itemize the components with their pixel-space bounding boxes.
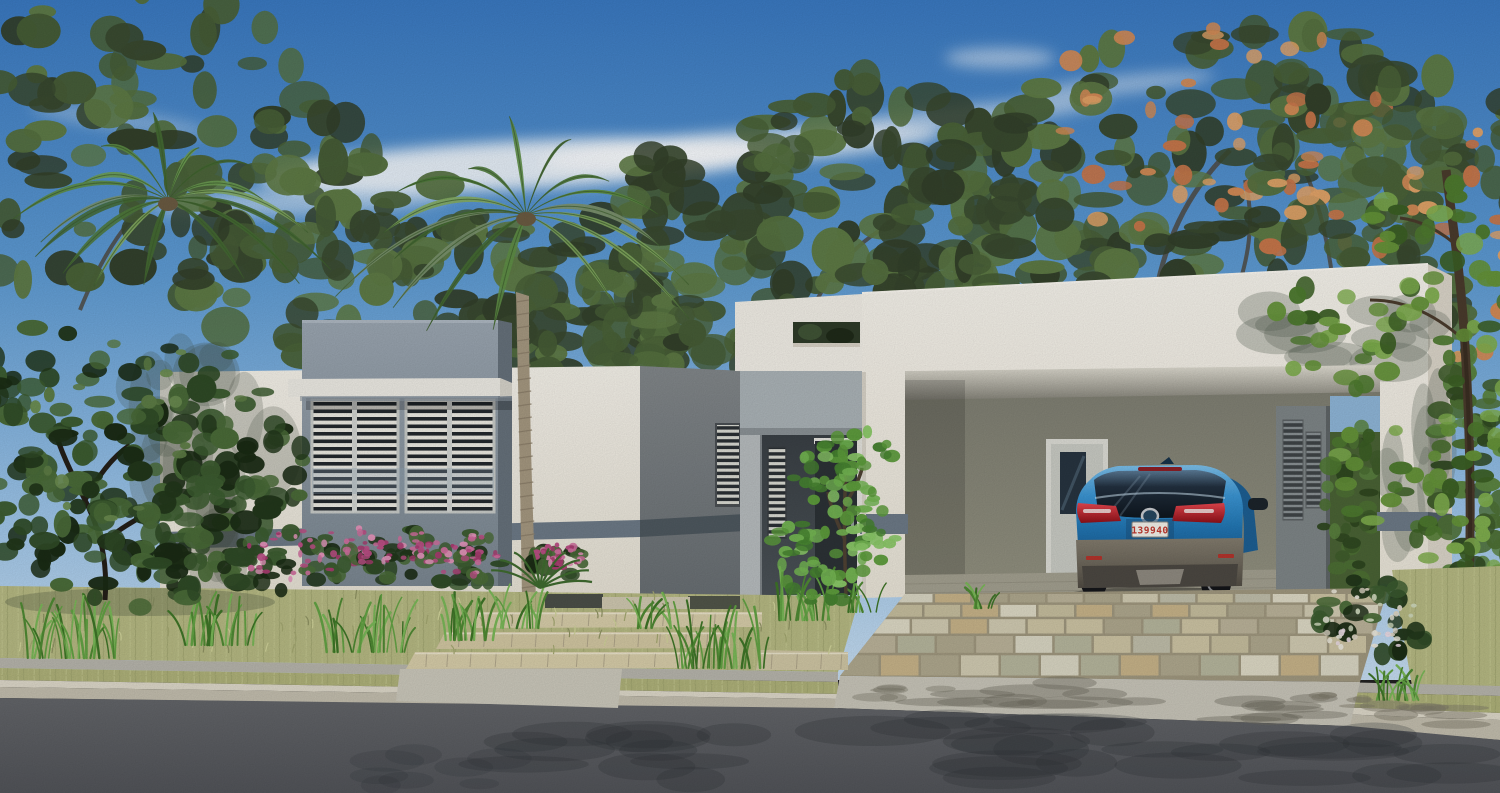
- entry-tree-foliage: [876, 505, 888, 517]
- background-tree-foliage: [16, 14, 60, 49]
- white-flower: [1348, 625, 1353, 631]
- entry-porch-pillar: [740, 435, 762, 604]
- pink-flower: [418, 547, 425, 553]
- paver-tile: [976, 636, 1013, 653]
- step-slab-dark: [545, 594, 603, 608]
- vent-grille: [1306, 432, 1321, 508]
- left-tree-highlight: [152, 399, 165, 405]
- entry-tree-foliage: [782, 550, 800, 556]
- shadow-blob: [1309, 692, 1338, 699]
- background-tree-foliage: [1443, 152, 1462, 166]
- paver-tile: [1281, 655, 1319, 675]
- paver-tile: [1267, 605, 1303, 617]
- left-tree-foliage: [166, 564, 189, 579]
- white-flower: [1352, 634, 1358, 639]
- entry-tree-foliage: [874, 555, 888, 566]
- flower-bush-foliage: [379, 571, 396, 584]
- paver-tile: [1144, 619, 1180, 633]
- license-plate-text: 139940: [1131, 526, 1168, 537]
- background-tree-foliage: [359, 273, 394, 306]
- paver-tile: [1198, 594, 1233, 602]
- right-tree-foliage: [1452, 515, 1469, 526]
- background-tree-foliage: [1325, 28, 1374, 40]
- entry-tree-foliage: [863, 425, 872, 438]
- orange-blossom: [1317, 32, 1327, 48]
- background-tree-foliage: [71, 144, 106, 167]
- orange-blossom: [1215, 198, 1229, 213]
- pink-flower: [305, 571, 310, 576]
- left-tree-foliage: [164, 481, 182, 498]
- right-tree-foliage: [1335, 477, 1357, 491]
- background-tree-foliage: [1035, 198, 1074, 232]
- left-tree-highlight: [169, 396, 182, 408]
- orange-blossom: [1173, 185, 1188, 203]
- entry-tree-foliage: [860, 551, 872, 561]
- orange-blossom: [1473, 127, 1483, 137]
- background-tree-foliage: [882, 126, 902, 169]
- right-tree-foliage: [1388, 205, 1409, 215]
- pink-flower: [305, 559, 311, 564]
- right-tree-foliage: [1409, 529, 1423, 548]
- entry-tree-foliage: [862, 533, 876, 541]
- background-tree-foliage: [691, 337, 726, 371]
- paver-tile: [1028, 619, 1064, 633]
- left-tree-foliage: [84, 551, 106, 563]
- pink-flower: [345, 549, 350, 556]
- window-mullion-right: [447, 400, 452, 512]
- paver-tile: [1273, 594, 1308, 602]
- shadow-blob: [1238, 770, 1371, 786]
- white-flower: [1336, 641, 1340, 645]
- right-tree-foliage: [1380, 231, 1396, 242]
- right-tree-foliage: [1305, 360, 1321, 371]
- orange-blossom: [1301, 151, 1324, 162]
- background-tree-foliage: [743, 181, 783, 204]
- entry-tree-foliage: [821, 569, 836, 586]
- left-tree-foliage: [50, 403, 73, 417]
- pink-flower: [291, 571, 297, 576]
- left-tree-foliage: [137, 502, 161, 525]
- background-tree-foliage: [662, 159, 705, 187]
- hedge-leaf: [1341, 523, 1351, 535]
- shadow-blob: [1339, 704, 1376, 708]
- orange-blossom: [1297, 186, 1320, 205]
- orange-blossom: [1407, 166, 1424, 180]
- orange-blossom: [1246, 49, 1262, 63]
- paver-tile: [1161, 655, 1199, 675]
- left-tree-foliage: [25, 350, 55, 372]
- palm-crown-base: [158, 197, 178, 211]
- right-tree-foliage: [1310, 332, 1329, 348]
- left-tree-highlight: [133, 506, 145, 511]
- pink-flower: [294, 534, 298, 539]
- background-tree-foliage: [834, 69, 854, 90]
- background-tree-foliage: [1019, 260, 1065, 274]
- left-tree-foliage: [18, 446, 44, 458]
- entry-tree-foliage: [794, 521, 810, 528]
- left-tree-foliage: [283, 465, 308, 485]
- left-tree-foliage: [48, 429, 77, 446]
- pink-flower: [270, 538, 278, 541]
- flower-bush-foliage: [1346, 574, 1362, 586]
- background-tree-foliage: [1352, 156, 1402, 187]
- left-tree-highlight: [73, 384, 85, 390]
- background-tree-foliage: [837, 120, 866, 136]
- left-tree-foliage: [234, 451, 256, 463]
- left-tree-foliage: [209, 490, 225, 506]
- pink-flower: [344, 538, 349, 544]
- background-tree-foliage: [671, 262, 717, 294]
- right-tree-foliage: [1374, 242, 1399, 254]
- pink-flower: [441, 570, 446, 574]
- left-tree-foliage: [104, 423, 127, 441]
- white-flower: [1393, 628, 1398, 634]
- pink-flower: [288, 576, 292, 582]
- right-tree-foliage: [1468, 422, 1485, 437]
- white-flower: [1331, 589, 1337, 593]
- left-tree-foliage: [200, 514, 229, 532]
- background-tree-foliage: [105, 23, 143, 53]
- white-flower: [1371, 644, 1378, 648]
- right-tree-foliage: [1425, 526, 1442, 541]
- flower-bush-foliage: [1316, 597, 1340, 607]
- left-tree-foliage: [81, 481, 99, 498]
- shadow-blob: [1241, 700, 1285, 711]
- background-tree-foliage: [1273, 59, 1310, 85]
- paver-tile: [1221, 619, 1257, 633]
- pink-flower: [578, 552, 583, 555]
- orange-blossom: [1286, 92, 1307, 106]
- right-tree-foliage: [1341, 505, 1363, 517]
- paver-tile: [1055, 636, 1092, 653]
- right-tree-foliage: [1348, 380, 1363, 398]
- background-tree-foliage: [416, 171, 465, 200]
- left-tree-foliage: [61, 417, 83, 427]
- left-tree-foliage: [109, 550, 131, 572]
- background-tree-foliage: [2, 219, 25, 238]
- orange-blossom: [1059, 50, 1082, 71]
- paver-tile: [1212, 636, 1249, 653]
- white-flower: [1324, 630, 1330, 636]
- walkway-slab: [602, 597, 690, 609]
- left-tree-foliage: [129, 598, 152, 615]
- orange-blossom: [1056, 127, 1075, 135]
- flower-bush-foliage: [1386, 580, 1408, 598]
- pink-flower: [433, 540, 440, 545]
- shadow-blob: [964, 714, 1126, 734]
- background-tree-foliage: [926, 139, 977, 171]
- foliage-through-opening: [826, 328, 854, 344]
- white-flower: [1366, 618, 1374, 621]
- background-tree-foliage: [1420, 106, 1467, 140]
- left-tree-foliage: [198, 366, 220, 383]
- right-tree-foliage: [1399, 277, 1419, 294]
- right-tree-foliage: [1337, 289, 1355, 304]
- left-tree-foliage: [251, 388, 274, 397]
- entry-tree-foliage: [818, 451, 834, 462]
- right-tree-foliage: [1267, 302, 1286, 322]
- right-tree-foliage: [1359, 440, 1372, 462]
- pink-flower: [365, 560, 373, 565]
- right-tree-foliage: [1434, 493, 1450, 516]
- orange-blossom: [1145, 101, 1156, 118]
- left-tree-foliage: [178, 353, 199, 373]
- left-tree-highlight: [63, 502, 71, 510]
- orange-blossom: [1163, 140, 1187, 151]
- entry-tree-foliage: [831, 431, 845, 444]
- lawn-tuft: [368, 616, 369, 625]
- right-tree-foliage: [1418, 552, 1439, 563]
- left-tree-foliage: [155, 522, 171, 543]
- lawn-tuft: [168, 627, 169, 636]
- window-canopy: [288, 378, 512, 397]
- hedge-leaf: [1317, 523, 1331, 531]
- left-tree-foliage: [262, 475, 279, 488]
- right-tree-foliage: [1475, 528, 1490, 543]
- white-flower: [1390, 615, 1395, 621]
- background-tree-foliage: [251, 11, 278, 44]
- background-tree-foliage: [254, 109, 284, 134]
- paver-tile: [1066, 619, 1102, 633]
- entry-tree-foliage: [795, 540, 813, 551]
- background-tree-foliage: [197, 115, 237, 147]
- hedge-leaf: [1329, 523, 1341, 539]
- palm-crown-base: [516, 212, 536, 226]
- paver-tile: [1133, 636, 1170, 653]
- white-flower: [1385, 632, 1391, 638]
- entry-tree-foliage: [882, 440, 892, 449]
- white-flower: [1314, 623, 1321, 626]
- pink-flower: [425, 543, 432, 549]
- entry-tree-foliage: [857, 456, 866, 465]
- pink-flower: [441, 547, 448, 554]
- entry-tree-foliage: [764, 535, 781, 546]
- orange-blossom: [1280, 41, 1299, 56]
- pink-flower: [248, 565, 255, 572]
- lawn-tuft: [789, 621, 790, 630]
- left-tree-highlight: [144, 357, 152, 371]
- pink-flower: [328, 531, 334, 534]
- hedge-leaf: [1321, 481, 1333, 494]
- entry-tree-foliage: [862, 525, 877, 533]
- paver-tile: [1160, 594, 1195, 602]
- shadow-blob: [876, 684, 906, 690]
- left-tree-highlight: [176, 349, 187, 355]
- left-tree-highlight: [44, 387, 55, 402]
- left-tree-foliage: [291, 489, 308, 501]
- paver-tile: [989, 619, 1025, 633]
- pink-flower: [321, 540, 327, 548]
- pink-flower: [568, 548, 574, 552]
- orange-blossom: [1174, 165, 1192, 185]
- entry-tree-foliage: [817, 440, 835, 448]
- pink-flower: [363, 541, 368, 545]
- left-tree-foliage: [183, 528, 214, 549]
- step-slab-dark: [688, 596, 740, 609]
- ornamental-grass: [245, 612, 246, 646]
- background-tree-foliage: [201, 307, 249, 347]
- right-tree-foliage: [1285, 361, 1301, 377]
- orange-blossom: [1203, 179, 1216, 186]
- left-tree-highlight: [172, 450, 186, 458]
- pink-flower: [494, 555, 500, 558]
- paver-tile: [1081, 655, 1119, 675]
- left-tree-foliage: [210, 428, 239, 450]
- carport-interior: 139940: [905, 365, 1398, 607]
- right-tree-foliage: [1380, 332, 1396, 354]
- entry-tree-foliage: [855, 565, 870, 577]
- left-tree-foliage: [13, 519, 32, 536]
- paver-tile: [1153, 605, 1189, 617]
- shadow-blob: [1346, 697, 1373, 703]
- right-tree-foliage: [1469, 260, 1491, 280]
- pink-flower: [470, 571, 477, 579]
- left-tree-foliage: [224, 574, 251, 591]
- pink-flower: [383, 556, 391, 561]
- paver-tile: [1115, 605, 1151, 617]
- background-tree-foliage: [52, 71, 97, 104]
- background-tree-foliage: [1231, 25, 1279, 44]
- interior-corner-shadow: [905, 380, 965, 584]
- background-tree-foliage: [651, 294, 675, 308]
- parapet-opening-sill: [793, 343, 860, 347]
- left-tree-foliage: [17, 378, 46, 397]
- left-tree-foliage: [72, 442, 93, 466]
- paver-tile: [912, 619, 948, 633]
- entry-tree-foliage: [846, 505, 861, 516]
- left-tree-foliage: [6, 538, 24, 550]
- background-tree-foliage: [322, 240, 354, 281]
- side-mirror: [1248, 498, 1268, 510]
- paver-tile: [898, 636, 935, 653]
- background-tree-foliage: [370, 191, 411, 208]
- background-tree-foliage: [948, 216, 973, 235]
- orange-blossom: [1466, 140, 1479, 149]
- pink-flower: [397, 542, 404, 549]
- background-tree-foliage: [1021, 78, 1062, 98]
- right-tree-foliage: [1341, 427, 1358, 443]
- entry-tree-foliage: [846, 481, 861, 491]
- background-tree-foliage: [1421, 54, 1454, 97]
- entry-tree-foliage: [820, 526, 830, 539]
- left-tree-highlight: [55, 474, 69, 488]
- flower-bush-foliage: [253, 573, 270, 592]
- paver-tile: [937, 636, 974, 653]
- white-flower: [1347, 637, 1351, 642]
- pink-flower: [444, 559, 450, 563]
- background-tree-foliage: [316, 196, 336, 238]
- flower-bush-foliage: [281, 524, 300, 541]
- pink-flower: [419, 531, 425, 535]
- shadow-blob: [1115, 752, 1242, 778]
- left-tree-highlight: [160, 369, 173, 377]
- window-mullion-left: [352, 400, 357, 512]
- background-tree-foliage: [1218, 220, 1259, 235]
- left-tree-highlight: [234, 395, 247, 402]
- background-tree-foliage: [675, 306, 695, 325]
- flower-bush-foliage: [395, 547, 408, 562]
- right-tree-foliage: [1369, 303, 1389, 317]
- pink-flower: [377, 540, 385, 547]
- shadow-blob: [1062, 688, 1127, 700]
- background-tree-foliage: [172, 268, 215, 290]
- white-flower: [1356, 608, 1361, 614]
- background-tree-foliage: [1253, 154, 1288, 171]
- right-tree-foliage: [1452, 211, 1477, 223]
- pink-flower: [325, 568, 332, 571]
- left-tree-foliage: [127, 461, 152, 481]
- pink-flower: [298, 542, 303, 547]
- white-flower: [1387, 623, 1393, 629]
- lawn-tuft: [43, 614, 44, 623]
- background-tree-foliage: [1211, 78, 1261, 100]
- orange-blossom: [1140, 168, 1156, 176]
- left-tree-foliage: [50, 578, 73, 592]
- left-tree-highlight: [30, 400, 41, 413]
- flower-bush-foliage: [1407, 622, 1425, 640]
- entry-tree-foliage: [883, 539, 896, 549]
- shadow-blob: [385, 744, 442, 765]
- shadow-blob: [926, 686, 956, 693]
- white-flower: [1393, 611, 1399, 617]
- background-tree-foliage: [994, 113, 1038, 134]
- left-tree-foliage: [263, 430, 284, 453]
- pink-flower: [479, 535, 485, 540]
- background-tree-foliage: [1319, 219, 1357, 239]
- background-tree-foliage: [579, 268, 624, 291]
- white-flower: [1394, 636, 1401, 641]
- flower-bush-foliage: [1363, 613, 1382, 623]
- left-tree-foliage: [84, 396, 115, 408]
- right-tree-foliage: [1389, 462, 1413, 475]
- right-tree-foliage: [1476, 335, 1497, 353]
- background-tree-foliage: [1074, 192, 1124, 208]
- orange-blossom: [1087, 212, 1108, 227]
- background-tree-foliage: [793, 93, 836, 118]
- shadow-blob: [434, 758, 493, 777]
- pink-flower: [299, 529, 307, 533]
- entry-tree-foliage: [785, 582, 801, 595]
- vent-louver-window: [716, 424, 740, 506]
- background-tree-foliage: [1195, 116, 1224, 146]
- shadow-blob: [1394, 744, 1500, 764]
- right-tree-foliage: [1443, 350, 1456, 366]
- paver-tile: [1290, 636, 1327, 653]
- pink-flower: [310, 544, 316, 549]
- left-tree-foliage: [73, 532, 92, 552]
- flower-bush-foliage: [337, 556, 351, 573]
- orange-blossom: [1134, 221, 1145, 232]
- entry-tree-foliage: [838, 445, 849, 462]
- right-tree-foliage: [1389, 425, 1403, 436]
- background-tree-foliage: [14, 260, 32, 299]
- pink-flower: [475, 551, 481, 559]
- pink-flower: [460, 542, 468, 547]
- paver-tile: [1172, 636, 1209, 653]
- hedge-leaf: [1343, 537, 1361, 549]
- orange-blossom: [1305, 111, 1316, 128]
- left-tree-foliage: [3, 397, 23, 426]
- shadow-blob: [1196, 716, 1281, 723]
- porch-header-shadow: [740, 428, 863, 435]
- background-tree-foliage: [190, 13, 217, 55]
- right-tree-foliage: [1411, 297, 1429, 311]
- pink-flower: [307, 538, 313, 543]
- lawn-tuft: [312, 619, 313, 628]
- shadow-blob: [1258, 736, 1402, 759]
- taillight-highlight: [1184, 509, 1214, 513]
- left-tree-foliage: [184, 553, 208, 571]
